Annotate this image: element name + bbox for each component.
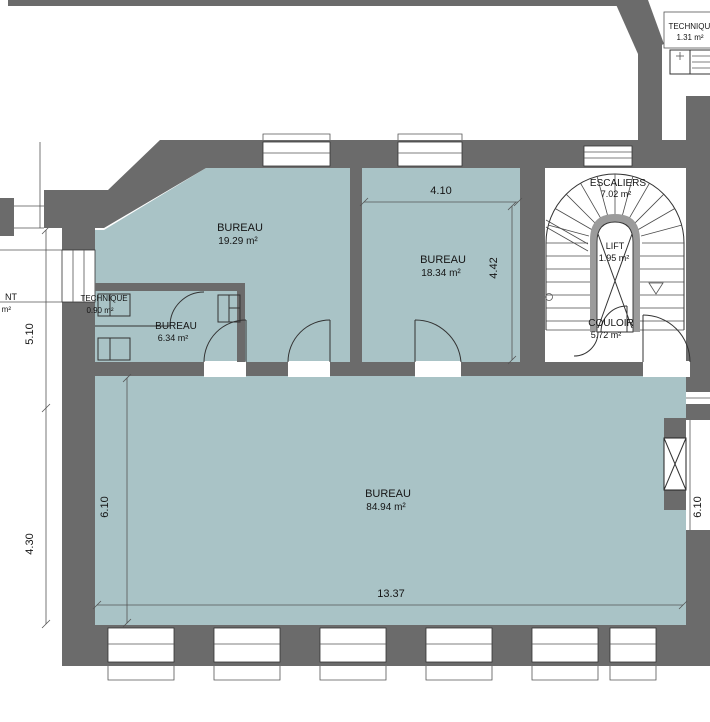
room-label-couloir: COULOIR [588,318,634,329]
room-label-technique-tr: TECHNIQUE [668,22,710,31]
wall-bureau18-stair [520,140,545,376]
room-label-escaliers: ESCALIERS [590,178,646,189]
room-label-lift: LIFT [606,241,625,251]
room-area-bureau84: 84.94 m² [366,502,406,513]
room-area-technique-tr: 1.31 m² [676,33,703,42]
room-area-bureau6: 6.34 m² [158,333,189,343]
dim-bureau18-width: 4.10 [430,185,451,197]
room-area-bureau19: 19.29 m² [218,236,258,247]
dim-left-upper: 5.10 [24,323,36,344]
room-area-escaliers: 7.02 m² [601,189,632,199]
room-area-partial-left: m² [2,305,12,314]
floor-plan-drawing: BUREAU 19.29 m² BUREAU 18.34 m² BUREAU 6… [0,0,710,722]
wall-left-stub [0,198,14,236]
wall-top-right-vertical [638,44,662,142]
duct-shaft-symbol [664,438,686,490]
window-bottom-6 [610,628,656,680]
dim-bureau18-height: 4.42 [488,257,500,278]
shaft-block-bottom [664,490,686,510]
door-arc-couloir [643,315,690,362]
stair-pole-circle [546,294,553,301]
wall-right-mid [686,404,710,420]
door-opening-3 [415,361,461,377]
wall-small-room-top [95,283,245,291]
wall-interior-band [62,362,710,376]
room-area-couloir: 5.72 m² [591,330,622,340]
window-stair [584,146,632,166]
wall-bureau19-bureau18 [350,168,362,362]
window-top-1 [263,134,330,166]
room-label-bureau6: BUREAU [155,321,197,332]
door-opening-4 [643,361,690,377]
room-label-partial-left: NT [5,292,17,302]
dim-left-lower: 4.30 [24,533,36,554]
door-opening-1 [204,361,246,377]
room-label-bureau84: BUREAU [365,488,411,500]
wall-right-upper [686,96,710,392]
window-bottom-5 [532,628,598,680]
ladder-icon [670,50,710,74]
dim-bureau84-height-right: 6.10 [692,496,704,517]
room-label-bureau19: BUREAU [217,222,263,234]
window-bottom-1 [108,628,174,680]
window-top-2 [398,134,462,166]
room-label-bureau18: BUREAU [420,254,466,266]
shaft-block-top [664,418,686,438]
dim-bureau84-width: 13.37 [377,588,405,600]
room-area-lift: 1.95 m² [599,253,630,263]
door-opening-2 [288,361,330,377]
window-bottom-4 [426,628,492,680]
window-bottom-2 [214,628,280,680]
dim-bureau84-height-left: 6.10 [99,496,111,517]
wall-top-strip [8,0,636,6]
room-area-technique-left: 0.90 m² [86,306,113,315]
room-label-technique-left: TECHNIQUE [80,294,127,303]
room-area-bureau18: 18.34 m² [421,268,461,279]
window-bottom-3 [320,628,386,680]
floor-plan: BUREAU 19.29 m² BUREAU 18.34 m² BUREAU 6… [0,0,710,722]
